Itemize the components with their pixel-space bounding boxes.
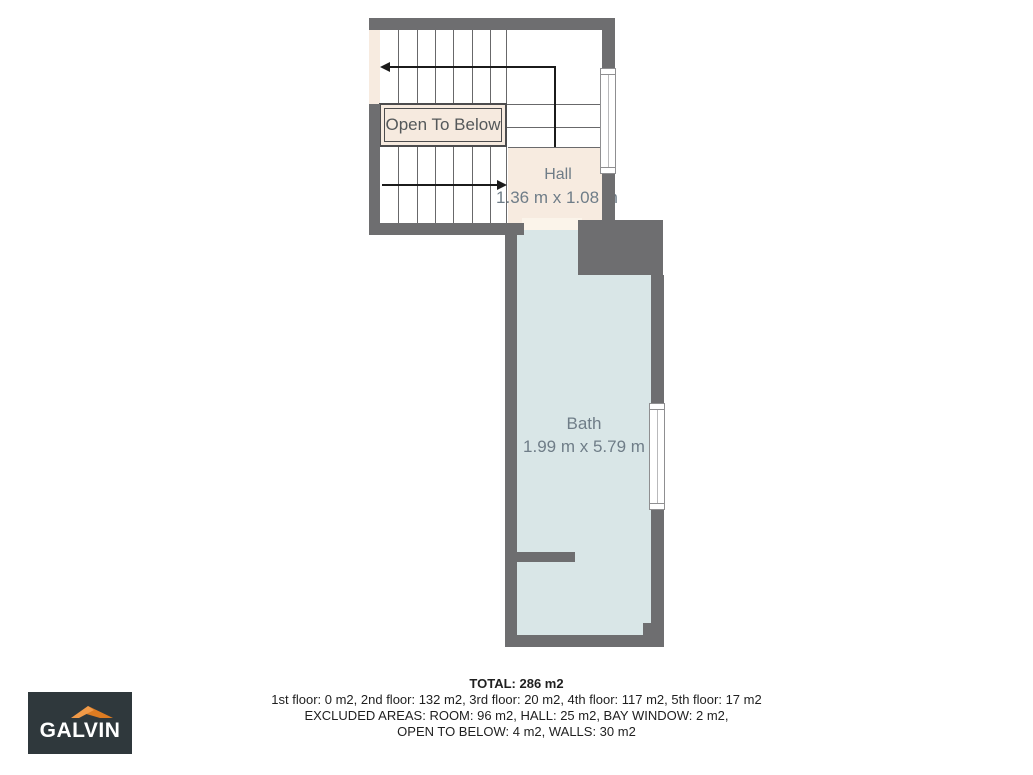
window-cap <box>650 503 664 504</box>
bath-room-name: Bath <box>567 414 602 434</box>
window-pane-line <box>608 75 609 167</box>
wall-segment-stair-bottom <box>369 223 524 235</box>
floorplan-page: Open To Below Hall 1.36 m x 1.08 m Bath … <box>0 0 1033 775</box>
area-summary: TOTAL: 286 m2 1st floor: 0 m2, 2nd floor… <box>0 676 1033 740</box>
hall-room-name: Hall <box>544 166 572 184</box>
wall-segment-left <box>369 104 380 235</box>
bath-room-dimensions: 1.99 m x 5.79 m <box>523 437 645 457</box>
wall-segment-bath-top-right-chunk <box>578 220 663 275</box>
window-marker-stairwell <box>600 68 616 174</box>
wall-segment-bath-bottom <box>505 635 664 647</box>
open-to-below-floor-strip <box>369 30 380 105</box>
stair-arrow-line-upper <box>389 66 555 68</box>
open-to-below-box: Open To Below <box>379 103 507 147</box>
wall-segment-interior-stub <box>517 552 575 562</box>
hall-floor <box>508 147 602 223</box>
summary-excluded-line1: EXCLUDED AREAS: ROOM: 96 m2, HALL: 25 m2… <box>0 708 1033 724</box>
stair-arrow-line-vertical <box>554 66 556 147</box>
hall-room-dimensions: 1.36 m x 1.08 m <box>496 188 618 208</box>
brand-logo: GALVIN <box>28 692 132 754</box>
open-to-below-label: Open To Below <box>384 108 502 142</box>
window-marker-bath <box>649 403 665 510</box>
bath-floor-entry <box>517 230 578 277</box>
wall-segment-bath-left <box>505 223 517 647</box>
summary-excluded-line2: OPEN TO BELOW: 4 m2, WALLS: 30 m2 <box>0 724 1033 740</box>
window-pane-line <box>657 410 658 503</box>
wall-segment-bath-corner-step <box>643 623 664 635</box>
wall-segment-top <box>369 18 615 30</box>
roof-icon <box>70 705 114 719</box>
door-threshold <box>522 218 582 230</box>
wall-segment-right-upper <box>602 18 615 70</box>
brand-name: GALVIN <box>40 720 121 741</box>
stair-arrow-left-icon <box>380 62 390 72</box>
summary-floors: 1st floor: 0 m2, 2nd floor: 132 m2, 3rd … <box>0 692 1033 708</box>
summary-total: TOTAL: 286 m2 <box>0 676 1033 692</box>
wall-segment-right-mid <box>602 172 615 222</box>
window-cap <box>601 167 615 168</box>
stair-arrow-line-lower <box>382 184 498 186</box>
